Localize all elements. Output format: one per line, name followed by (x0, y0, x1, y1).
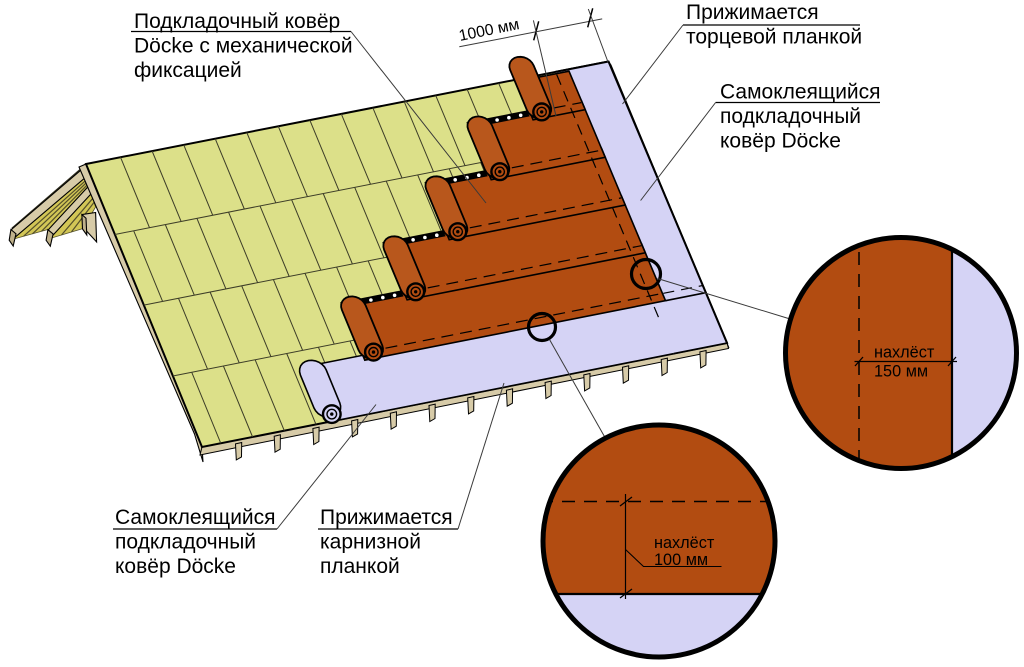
svg-text:Прижимается: Прижимается (686, 1, 819, 24)
svg-text:нахлёст: нахлёст (654, 534, 715, 552)
svg-text:торцевой планкой: торцевой планкой (686, 26, 862, 49)
svg-text:ковёр Döcke: ковёр Döcke (115, 555, 236, 578)
svg-text:100 мм: 100 мм (654, 551, 708, 569)
svg-text:нахлёст: нахлёст (874, 344, 935, 362)
svg-text:150 мм: 150 мм (874, 363, 928, 381)
svg-text:Самоклеящийся: Самоклеящийся (720, 81, 881, 104)
svg-text:карнизной: карнизной (320, 531, 421, 554)
svg-text:подкладочный: подкладочный (720, 105, 861, 128)
svg-text:Döcke с механической: Döcke с механической (134, 35, 353, 58)
svg-text:Прижимается: Прижимается (320, 506, 453, 529)
svg-text:Подкладочный ковёр: Подкладочный ковёр (134, 10, 340, 33)
svg-text:подкладочный: подкладочный (115, 531, 256, 554)
svg-text:планкой: планкой (320, 555, 400, 578)
svg-text:фиксацией: фиксацией (134, 59, 242, 82)
svg-text:Самоклеящийся: Самоклеящийся (115, 506, 276, 529)
svg-text:ковёр Döcke: ковёр Döcke (720, 130, 841, 153)
